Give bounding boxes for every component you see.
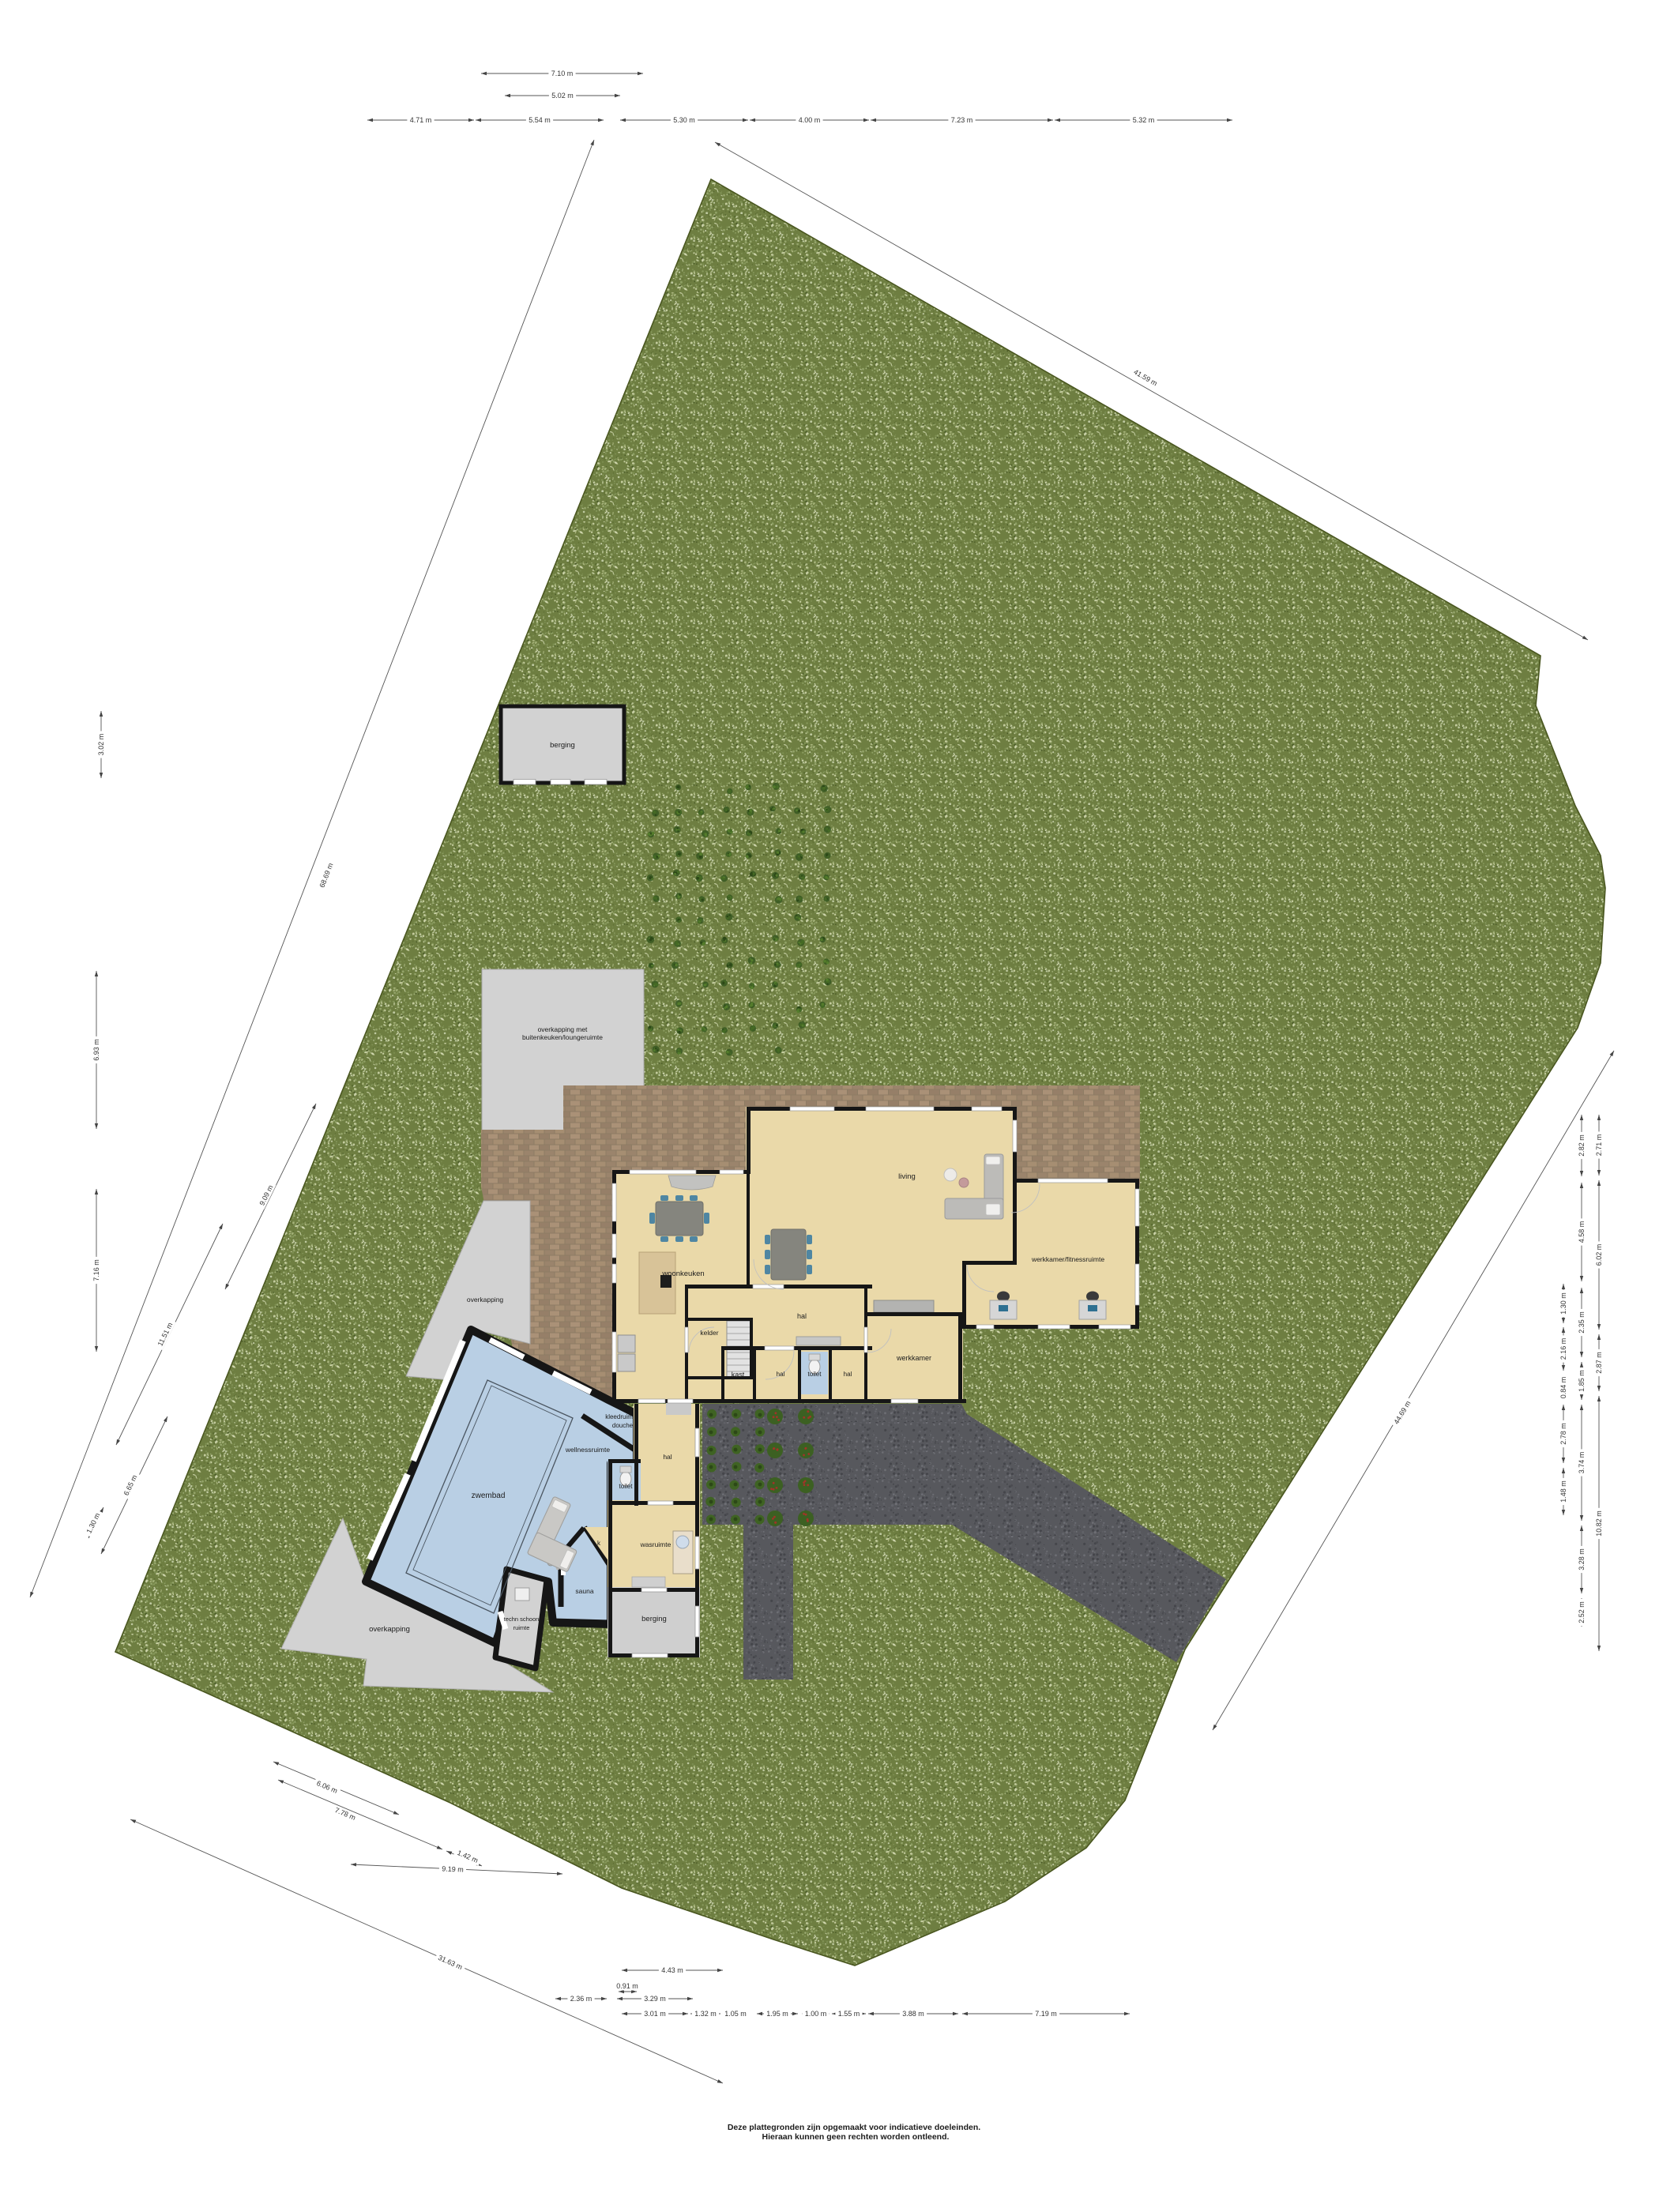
svg-text:2.71 m: 2.71 m	[1595, 1134, 1603, 1157]
svg-text:zwembad: zwembad	[472, 1492, 506, 1500]
svg-text:5.32 m: 5.32 m	[1133, 116, 1155, 124]
svg-text:sauna: sauna	[575, 1587, 593, 1595]
svg-text:techn schoon: techn schoon	[504, 1616, 540, 1623]
svg-text:toilet: toilet	[808, 1371, 822, 1378]
svg-text:1.48 m: 1.48 m	[1559, 1480, 1567, 1503]
svg-text:berging: berging	[550, 741, 575, 750]
svg-text:werkkamer: werkkamer	[896, 1354, 931, 1362]
svg-text:4.43 m: 4.43 m	[661, 1966, 683, 1974]
svg-text:1.00 m: 1.00 m	[805, 2010, 827, 2018]
svg-text:2.78 m: 2.78 m	[1559, 1423, 1567, 1445]
svg-text:1.55 m: 1.55 m	[838, 2010, 860, 2018]
svg-text:2.52 m: 2.52 m	[1578, 1601, 1586, 1623]
svg-text:10.82 m: 10.82 m	[1595, 1510, 1603, 1537]
svg-text:living: living	[898, 1172, 916, 1181]
svg-text:3.29 m: 3.29 m	[644, 1995, 666, 2003]
svg-text:3.02 m: 3.02 m	[97, 734, 105, 756]
svg-text:7.10 m: 7.10 m	[551, 70, 574, 77]
svg-text:0.91 m: 0.91 m	[616, 1982, 638, 1990]
svg-text:buitenkeuken/loungeruimte: buitenkeuken/loungeruimte	[522, 1033, 603, 1041]
svg-text:hal: hal	[844, 1371, 852, 1378]
svg-text:2.87 m: 2.87 m	[1595, 1352, 1603, 1374]
svg-text:toilet: toilet	[619, 1483, 634, 1490]
svg-text:5.02 m: 5.02 m	[551, 92, 574, 100]
svg-text:wellnessruimte: wellnessruimte	[565, 1446, 610, 1454]
svg-text:3.74 m: 3.74 m	[1578, 1452, 1586, 1474]
svg-text:7.16 m: 7.16 m	[92, 1259, 100, 1281]
svg-text:1.30 m: 1.30 m	[1559, 1292, 1567, 1315]
svg-text:5.54 m: 5.54 m	[529, 116, 551, 124]
svg-text:3.88 m: 3.88 m	[902, 2010, 924, 2018]
svg-text:douche: douche	[612, 1422, 634, 1429]
svg-text:overkapping: overkapping	[467, 1296, 504, 1303]
svg-text:3.01 m: 3.01 m	[644, 2010, 666, 2018]
svg-text:berging: berging	[641, 1615, 667, 1623]
svg-text:5.30 m: 5.30 m	[673, 116, 695, 124]
svg-text:9.19 m: 9.19 m	[442, 1864, 464, 1873]
svg-text:ruimte: ruimte	[513, 1624, 530, 1631]
svg-text:wasruimte: wasruimte	[640, 1540, 671, 1548]
svg-text:6.02 m: 6.02 m	[1595, 1244, 1603, 1266]
svg-text:1.32 m: 1.32 m	[694, 2010, 717, 2018]
svg-text:2.82 m: 2.82 m	[1578, 1134, 1586, 1157]
svg-text:Hieraan kunnen geen rechten wo: Hieraan kunnen geen rechten worden ontle…	[762, 2132, 950, 2142]
svg-text:hal: hal	[663, 1453, 671, 1461]
svg-text:7.19 m: 7.19 m	[1035, 2010, 1057, 2018]
svg-text:hal: hal	[797, 1312, 807, 1320]
svg-text:4.00 m: 4.00 m	[799, 116, 821, 124]
svg-text:1.85 m: 1.85 m	[1578, 1370, 1586, 1392]
svg-text:woonkeuken: woonkeuken	[661, 1270, 704, 1278]
svg-text:1.05 m: 1.05 m	[724, 2010, 747, 2018]
svg-text:overkapping met: overkapping met	[538, 1025, 588, 1033]
svg-text:2.36 m: 2.36 m	[570, 1995, 592, 2003]
svg-text:4.71 m: 4.71 m	[410, 116, 432, 124]
svg-text:2.35 m: 2.35 m	[1578, 1311, 1586, 1334]
svg-text:kast: kast	[732, 1371, 745, 1379]
svg-text:2.16 m: 2.16 m	[1559, 1338, 1567, 1360]
svg-text:overkapping: overkapping	[369, 1625, 410, 1634]
svg-text:3.28 m: 3.28 m	[1578, 1548, 1586, 1571]
svg-text:kelder: kelder	[700, 1329, 718, 1337]
svg-text:4.58 m: 4.58 m	[1578, 1221, 1586, 1243]
svg-text:Deze plattegronden zijn opgema: Deze plattegronden zijn opgemaakt voor i…	[728, 2123, 980, 2132]
svg-text:hal: hal	[777, 1371, 785, 1378]
svg-text:6.93 m: 6.93 m	[92, 1039, 100, 1061]
svg-text:1.95 m: 1.95 m	[766, 2010, 788, 2018]
svg-text:werkkamer/fitnessruimte: werkkamer/fitnessruimte	[1031, 1255, 1104, 1263]
svg-text:7.23 m: 7.23 m	[951, 116, 973, 124]
svg-text:0.84 m: 0.84 m	[1559, 1377, 1567, 1399]
